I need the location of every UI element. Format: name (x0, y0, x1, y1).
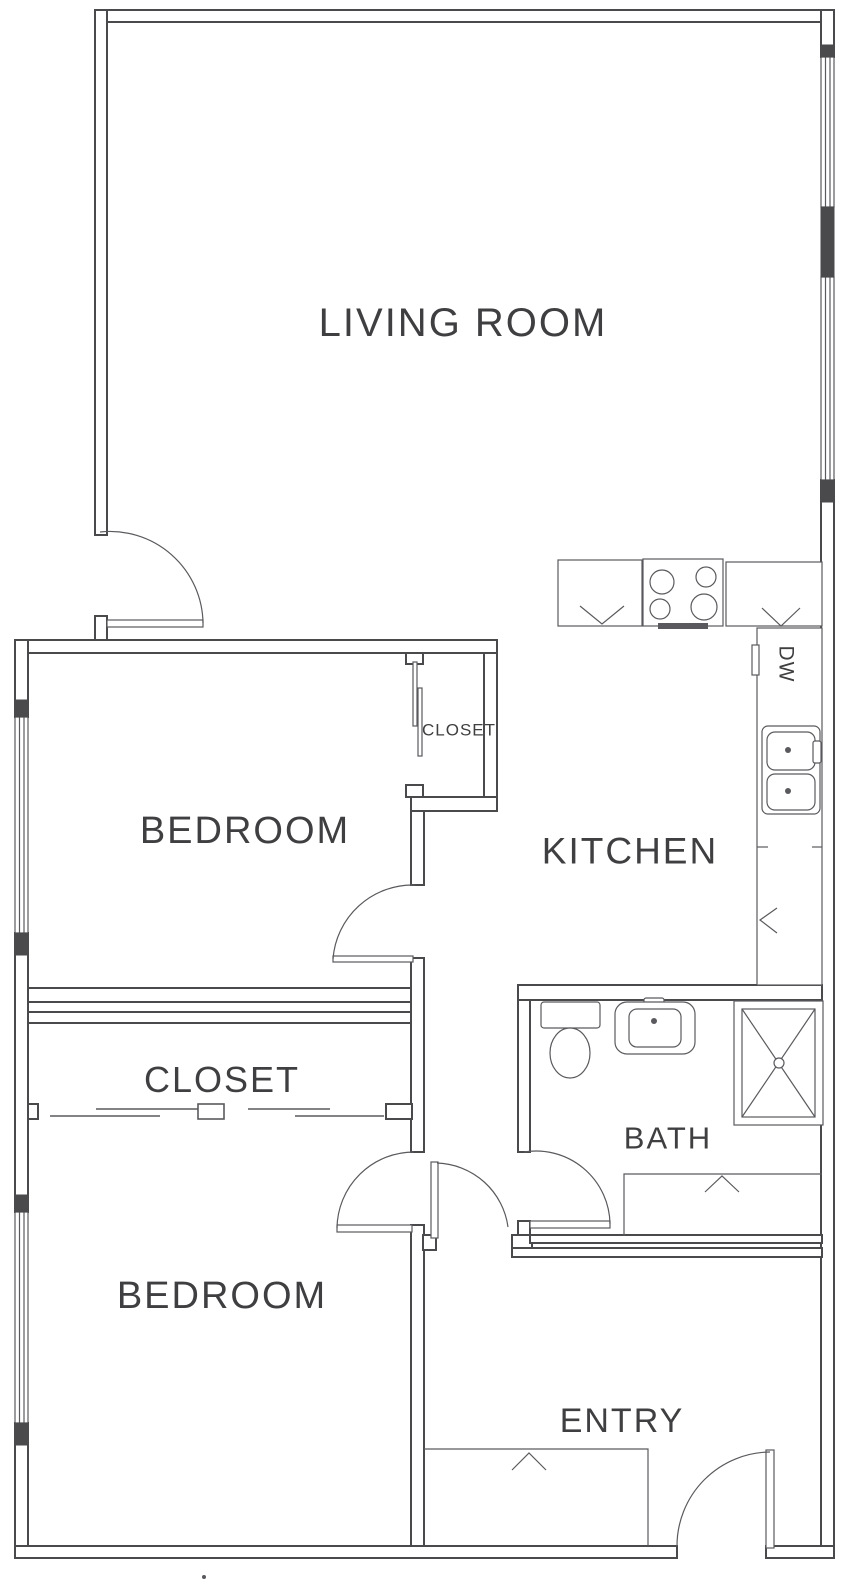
bedroom-bottom-label: BEDROOM (117, 1277, 327, 1315)
toilet-icon (541, 1002, 600, 1078)
wall-closetroom-north (28, 1012, 412, 1023)
cabinet-chevron-icon (512, 1453, 546, 1470)
wall-closet-south (411, 797, 497, 811)
bath-door (524, 1151, 610, 1228)
dishwasher-label: DW (776, 646, 797, 683)
door-swing-arc (437, 1163, 508, 1227)
wall-bath-south (530, 1235, 822, 1243)
wall-bath-jamb-a (518, 1221, 530, 1235)
living-room-label: LIVING ROOM (319, 303, 608, 343)
counter-cabinet-left (558, 560, 642, 626)
bedroom2-door (337, 1152, 414, 1232)
entry-door (677, 1450, 774, 1548)
sliding-closet-doors (50, 1104, 384, 1119)
cabinet-chevron-icon (705, 1176, 739, 1192)
wall-bath-west (518, 1000, 530, 1152)
wall-bedroom2-entry-divider (411, 1225, 424, 1546)
bedroom-closet-label: CLOSET (422, 722, 496, 739)
door-swing-arc (100, 531, 203, 623)
floor-plan-linework (0, 0, 852, 1582)
door-swing-arc (524, 1151, 610, 1224)
door-swing-arc (333, 885, 415, 959)
kitchen-fixtures (558, 559, 822, 985)
wall-slider-stub-right (386, 1104, 412, 1119)
closet-room-label: CLOSET (144, 1062, 300, 1098)
wall-west-seg2 (15, 933, 28, 1212)
entry-label: ENTRY (560, 1404, 685, 1438)
stove-icon (643, 559, 723, 629)
door-leaf (337, 1225, 412, 1232)
hall-entry-door (431, 1162, 508, 1238)
living-room-door (100, 531, 203, 627)
wall-hall-west-upper (411, 811, 424, 885)
bedroom1-door (333, 885, 415, 962)
wall-hall-west-mid (411, 958, 424, 1152)
door-leaf (766, 1450, 774, 1548)
bedroom-top-label: BEDROOM (140, 812, 350, 850)
door-leaf (333, 956, 413, 962)
kitchen-label: KITCHEN (542, 833, 718, 870)
door-swing-arc (677, 1452, 770, 1546)
wall-entry-north (512, 1248, 822, 1257)
door-leaf (431, 1162, 438, 1238)
wall-bottom-left (15, 1546, 677, 1558)
counter-cabinet-right (726, 562, 822, 626)
floor-plan: LIVING ROOM BEDROOM CLOSET KITCHEN CLOSE… (0, 0, 852, 1582)
wall-livingroom-west (95, 10, 107, 535)
door-swing-arc (337, 1152, 414, 1228)
window-livingroom-east-1 (821, 57, 834, 207)
kitchen-double-sink-icon (762, 726, 821, 814)
bath-label: BATH (624, 1123, 712, 1154)
wall-slider-stub-left (28, 1104, 38, 1119)
dishwasher-handle (752, 645, 759, 675)
wall-bedroom1-south (28, 988, 412, 1002)
vanity-sink-icon (615, 998, 695, 1054)
window-bedroom-bottom (15, 1212, 28, 1423)
bedroom1-closet-door-panels (413, 662, 422, 756)
shower-icon (734, 1001, 823, 1125)
bath-cabinet (624, 1174, 822, 1236)
entry-fixtures (424, 1449, 648, 1546)
door-leaf (530, 1221, 610, 1228)
wall-top (95, 10, 834, 22)
scan-artifact-dot (202, 1575, 206, 1579)
bath-fixtures (541, 998, 823, 1236)
wall-bath-north (518, 985, 822, 1000)
wall-closet-stub-bottom (406, 785, 423, 797)
wall-bottom-right (766, 1546, 834, 1558)
window-livingroom-east-2 (821, 277, 834, 480)
entry-closet (424, 1449, 648, 1546)
wall-wing-north (15, 640, 497, 653)
door-leaf (107, 620, 203, 627)
window-bedroom-top (15, 717, 28, 933)
